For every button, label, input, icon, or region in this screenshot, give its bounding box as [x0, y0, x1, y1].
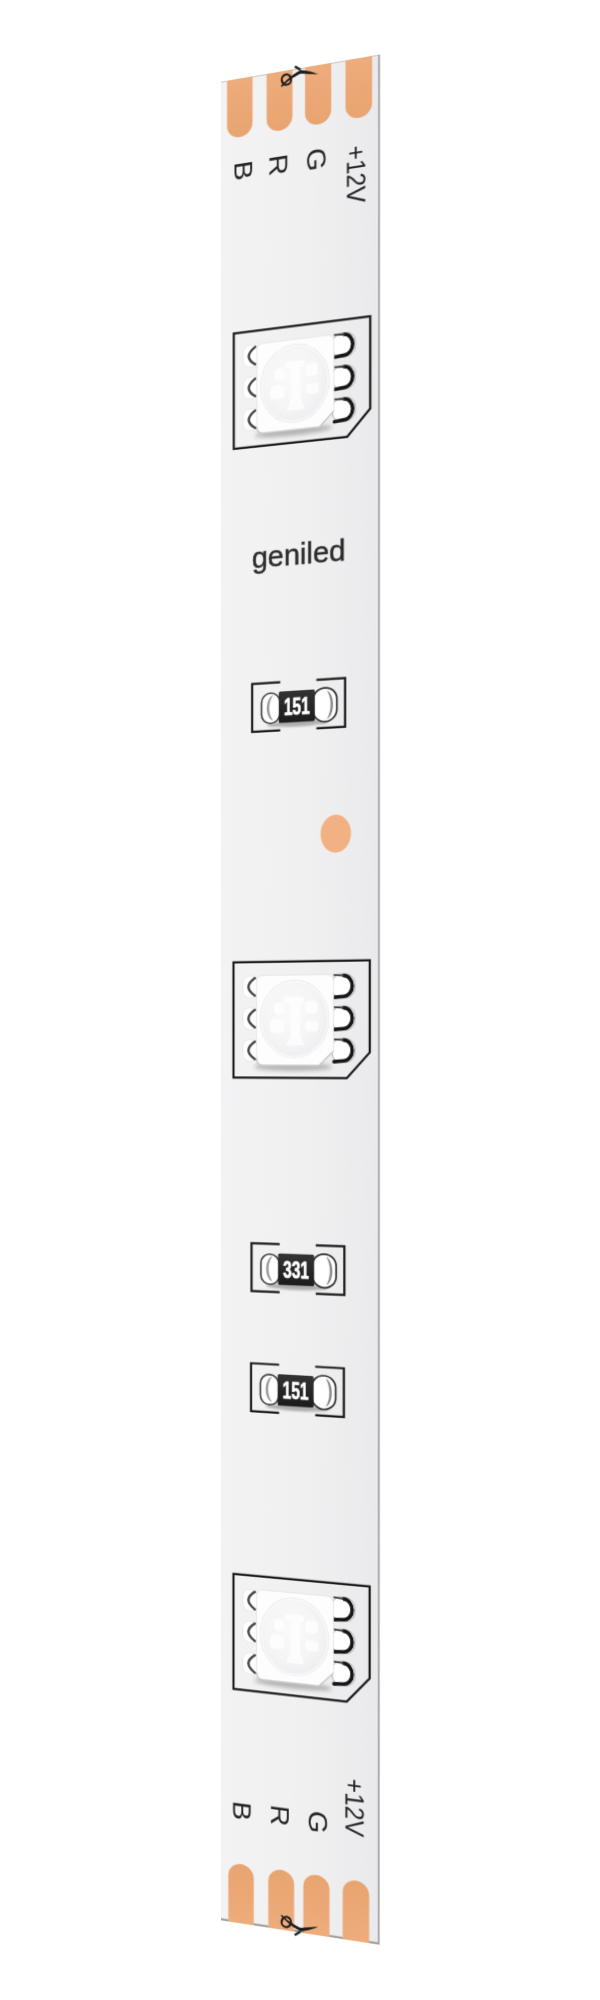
svg-text:R: R — [265, 1803, 294, 1828]
svg-text:+12V: +12V — [341, 143, 370, 205]
svg-text:G: G — [303, 1809, 332, 1836]
svg-text:151: 151 — [284, 692, 310, 720]
svg-text:G: G — [302, 146, 331, 173]
svg-text:331: 331 — [283, 1256, 309, 1284]
svg-text:151: 151 — [283, 1377, 309, 1405]
svg-text:R: R — [264, 152, 293, 177]
svg-text:+12V: +12V — [339, 1777, 368, 1838]
svg-text:B: B — [227, 1799, 255, 1822]
